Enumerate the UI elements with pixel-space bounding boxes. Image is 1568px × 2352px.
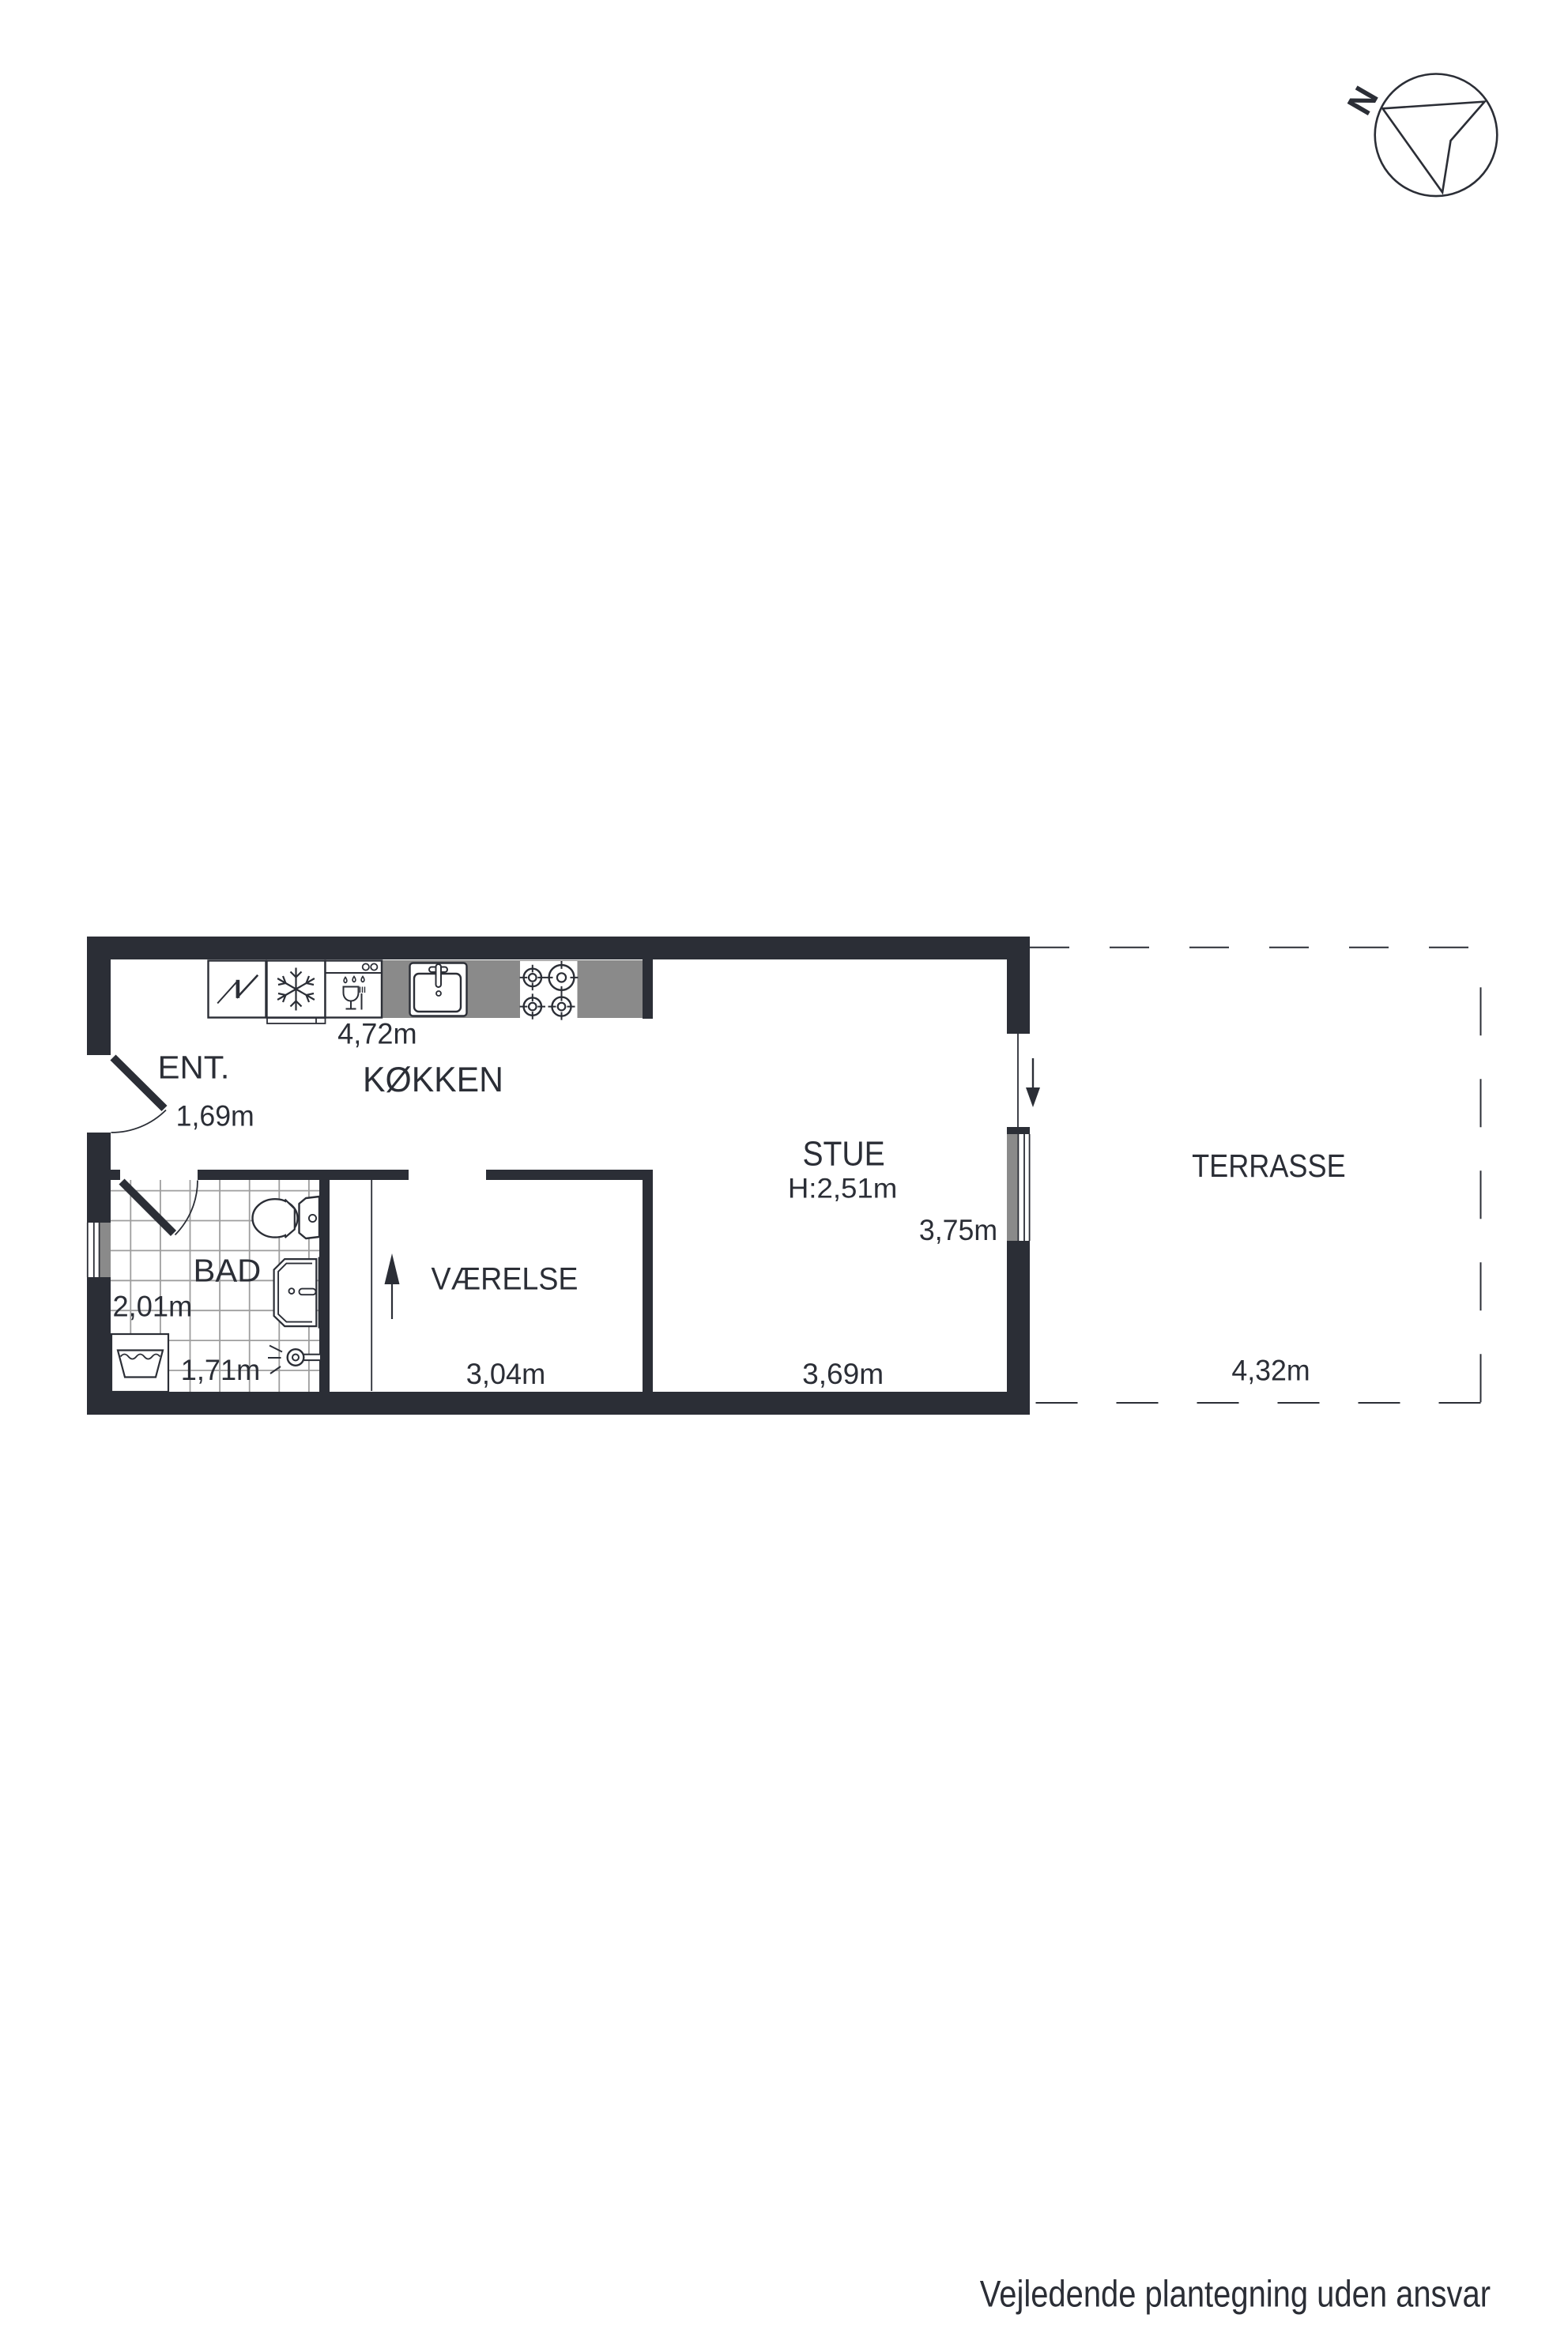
svg-text:TERRASSE: TERRASSE (1192, 1148, 1346, 1184)
svg-text:STUE: STUE (803, 1136, 885, 1174)
svg-text:KØKKEN: KØKKEN (363, 1061, 503, 1099)
svg-text:2,01m: 2,01m (112, 1291, 192, 1323)
svg-text:H:2,51m: H:2,51m (788, 1173, 898, 1204)
svg-text:3,75m: 3,75m (919, 1214, 997, 1246)
svg-text:BAD: BAD (194, 1252, 262, 1288)
svg-text:4,72m: 4,72m (337, 1017, 417, 1050)
svg-text:1,71m: 1,71m (181, 1354, 261, 1386)
svg-text:4,32m: 4,32m (1231, 1355, 1310, 1387)
svg-text:1,69m: 1,69m (176, 1099, 254, 1132)
svg-text:3,69m: 3,69m (802, 1358, 884, 1390)
svg-text:ENT.: ENT. (158, 1049, 230, 1085)
svg-text:Vejledende plantegning uden an: Vejledende plantegning uden ansvar (980, 2273, 1491, 2315)
svg-text:3,04m: 3,04m (466, 1358, 546, 1390)
svg-text:VÆRELSE: VÆRELSE (432, 1261, 579, 1296)
